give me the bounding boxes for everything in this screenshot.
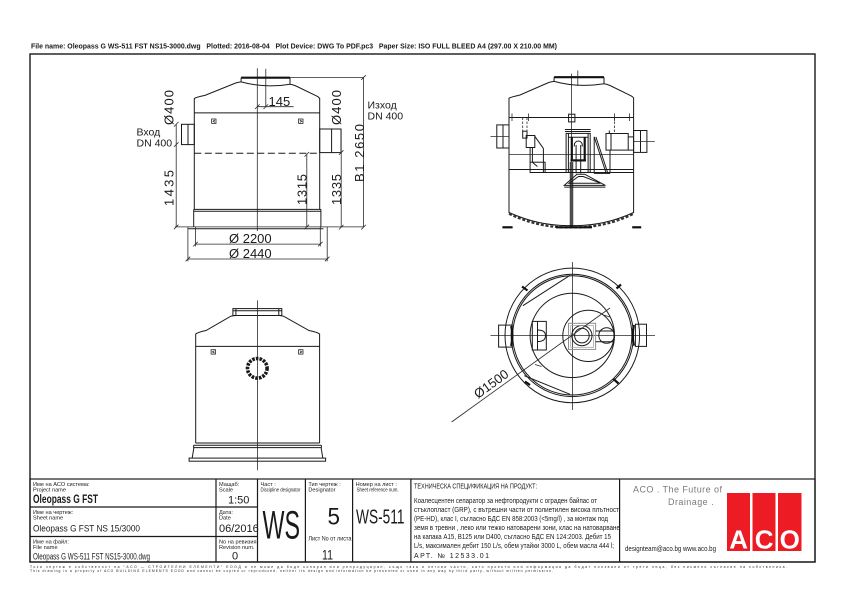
svg-text:designteam@aco.bg www.aco.bg: designteam@aco.bg www.aco.bg	[625, 546, 716, 553]
svg-text:Лист No от листа: Лист No от листа	[308, 536, 351, 543]
svg-text:ACO . The Future of: ACO . The Future of	[633, 485, 722, 495]
svg-text:Discipline designator: Discipline designator	[261, 488, 301, 494]
svg-text:Drainage .: Drainage .	[668, 497, 714, 507]
svg-text:Designator: Designator	[308, 488, 335, 494]
svg-text:C: C	[755, 525, 774, 555]
svg-text:Ø400: Ø400	[329, 90, 344, 125]
svg-text:Ø400: Ø400	[162, 90, 177, 125]
svg-text:DN 400: DN 400	[137, 138, 173, 150]
svg-text:Oleopass G FST: Oleopass G FST	[33, 494, 98, 506]
svg-text:ТЕХНИЧЕСКА СПЕЦИФИКАЦИЯ НА ПРО: ТЕХНИЧЕСКА СПЕЦИФИКАЦИЯ НА ПРОДУКТ:	[414, 484, 537, 491]
svg-text:1:50: 1:50	[228, 495, 249, 507]
svg-text:O: O	[780, 525, 800, 555]
svg-text:Oleopass G FST NS 15/3000: Oleopass G FST NS 15/3000	[33, 524, 140, 534]
svg-text:WS: WS	[263, 504, 301, 548]
svg-text:АРТ. № 12533.01: АРТ. № 12533.01	[414, 553, 489, 560]
svg-text:Project name: Project name	[33, 488, 66, 494]
svg-text:1335: 1335	[329, 174, 344, 205]
svg-text:11: 11	[322, 547, 333, 563]
svg-text:стъклопласт (GRP), с вътрешни: стъклопласт (GRP), с вътрешни части от п…	[414, 507, 620, 514]
svg-text:Sheet name: Sheet name	[33, 516, 63, 522]
svg-text:5: 5	[328, 504, 341, 531]
svg-text:DN 400: DN 400	[368, 111, 404, 123]
svg-text:L/s, максимален дебит 150 L/s,: L/s, максимален дебит 150 L/s, обем утай…	[414, 542, 614, 550]
svg-text:Scale: Scale	[219, 488, 233, 494]
svg-text:145: 145	[269, 94, 291, 109]
svg-text:WS-511: WS-511	[356, 507, 405, 529]
svg-text:Oleopass G WS-511 FST NS15-300: Oleopass G WS-511 FST NS15-3000.dwg	[33, 552, 150, 562]
svg-text:This drawing is a property of: This drawing is a property of ACO BUILDI…	[30, 569, 553, 573]
svg-text:земя в тревни , леко или тежко: земя в тревни , леко или тежко натоварен…	[414, 525, 620, 532]
svg-text:File name: File name	[33, 545, 58, 551]
svg-text:1315: 1315	[295, 174, 310, 205]
svg-text:Ø 2200: Ø 2200	[229, 231, 272, 246]
svg-text:File name: Oleopass G WS-511 F: File name: Oleopass G WS-511 FST NS15-30…	[31, 44, 557, 51]
svg-text:Date: Date	[219, 516, 231, 522]
svg-text:на капака A15, B125 или D400,: на капака A15, B125 или D400, съгласно Б…	[414, 533, 611, 541]
svg-text:A: A	[729, 525, 748, 555]
svg-text:Коалесцентен сепаратор за нефт: Коалесцентен сепаратор за нефтопродукти …	[414, 497, 598, 505]
svg-text:(PE-HD), клас I, съгласно БДС: (PE-HD), клас I, съгласно БДС EN 858:200…	[414, 516, 608, 523]
svg-text:Sheet reference num.: Sheet reference num.	[357, 488, 399, 494]
svg-text:Ø 2440: Ø 2440	[229, 246, 272, 261]
svg-text:06/2016: 06/2016	[219, 523, 259, 535]
svg-text:0: 0	[232, 551, 238, 563]
